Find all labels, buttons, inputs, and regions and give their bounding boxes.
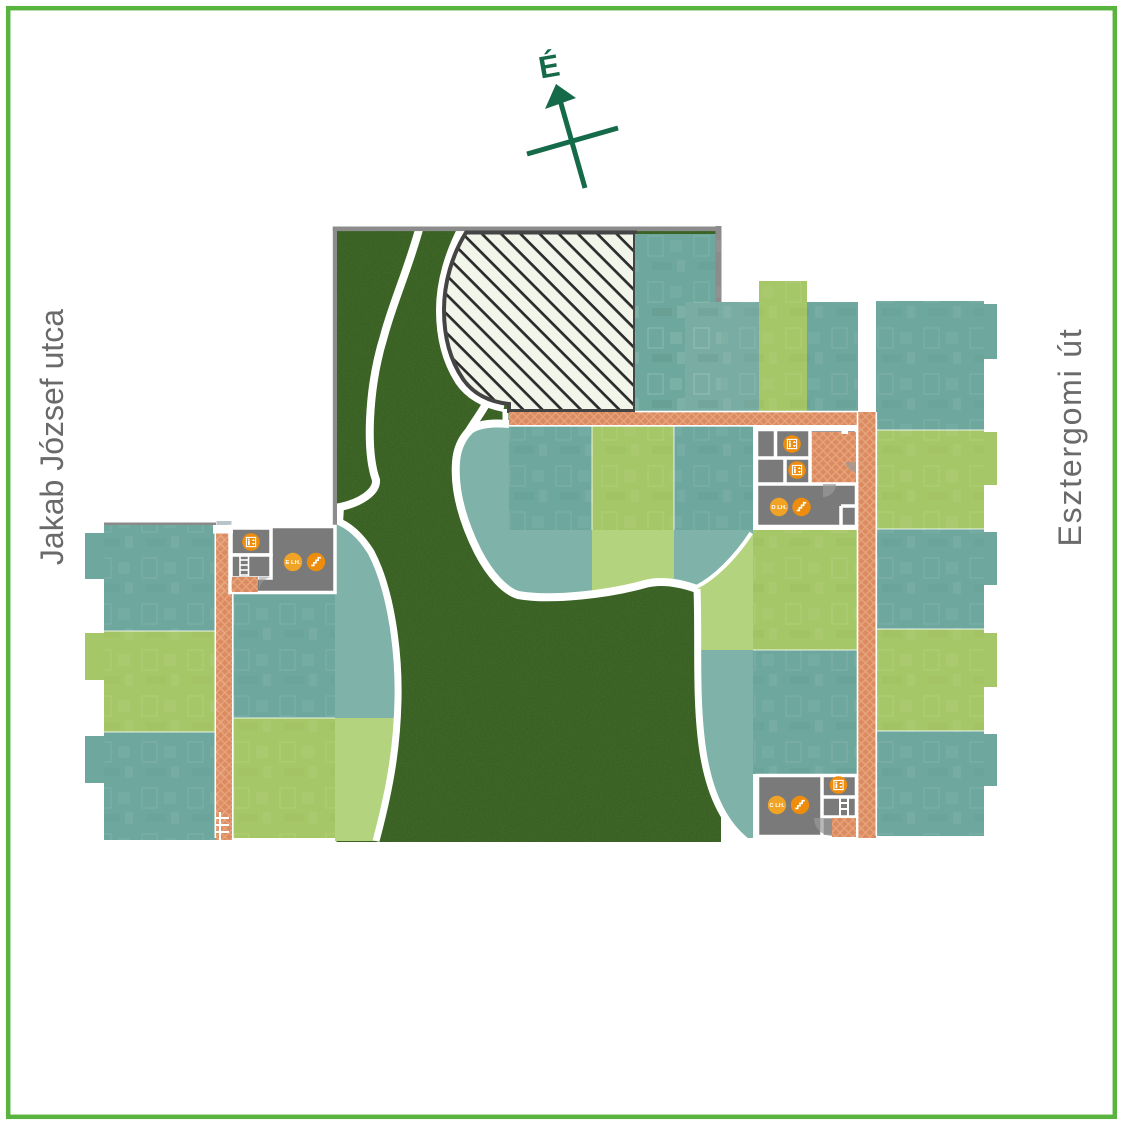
svg-text:É: É [536, 47, 562, 85]
svg-text:C LH.: C LH. [769, 803, 785, 809]
svg-text:E LH.: E LH. [285, 560, 300, 566]
svg-text:Esztergomi út: Esztergomi út [1052, 327, 1088, 546]
svg-text:D LH.: D LH. [771, 505, 787, 511]
svg-text:Jakab József utca: Jakab József utca [34, 309, 70, 565]
